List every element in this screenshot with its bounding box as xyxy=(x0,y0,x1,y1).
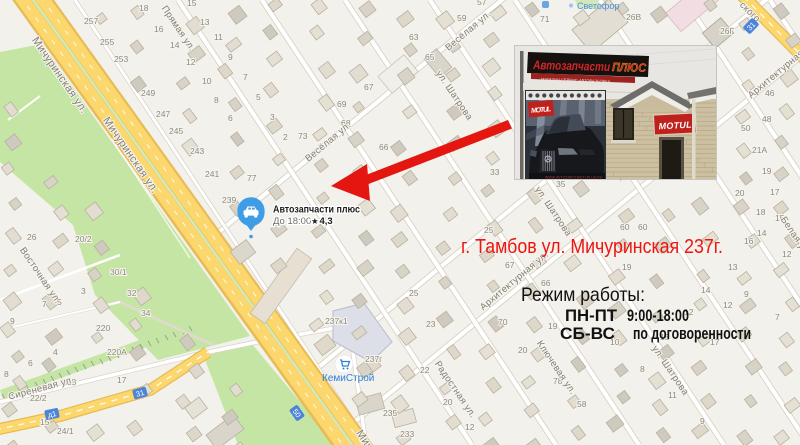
svg-text:77: 77 xyxy=(247,173,257,183)
svg-text:г. Тамбов ул. Мичуринская 237г: г. Тамбов ул. Мичуринская 237г. xyxy=(461,236,723,258)
svg-text:70: 70 xyxy=(498,317,508,327)
svg-text:66: 66 xyxy=(379,142,389,152)
svg-text:26Г: 26Г xyxy=(720,26,734,36)
svg-text:257: 257 xyxy=(84,16,98,26)
svg-text:8: 8 xyxy=(214,95,219,105)
svg-text:241: 241 xyxy=(205,169,219,179)
svg-text:58: 58 xyxy=(577,399,587,409)
svg-text:26В: 26В xyxy=(626,12,641,22)
svg-text:16: 16 xyxy=(154,24,164,34)
svg-text:7: 7 xyxy=(775,312,780,322)
svg-text:73: 73 xyxy=(298,131,308,141)
svg-text:247: 247 xyxy=(156,109,170,119)
svg-text:9:00-18:00: 9:00-18:00 xyxy=(627,307,689,325)
svg-text:СБ-ВС: СБ-ВС xyxy=(560,325,615,343)
svg-text:MOTUL: MOTUL xyxy=(658,120,691,132)
svg-text:249: 249 xyxy=(141,88,155,98)
svg-text:25: 25 xyxy=(484,225,494,235)
svg-text:12: 12 xyxy=(465,422,475,432)
svg-text:25: 25 xyxy=(409,288,419,298)
svg-text:22: 22 xyxy=(420,365,430,375)
svg-text:235: 235 xyxy=(383,408,397,418)
svg-text:19: 19 xyxy=(548,321,558,331)
svg-text:48: 48 xyxy=(762,114,772,124)
svg-text:9: 9 xyxy=(10,316,15,326)
svg-text:10: 10 xyxy=(202,76,212,86)
svg-text:67: 67 xyxy=(364,82,374,92)
svg-text:2: 2 xyxy=(283,132,288,142)
svg-text:26: 26 xyxy=(27,232,37,242)
svg-text:4,3: 4,3 xyxy=(320,216,333,227)
svg-text:57: 57 xyxy=(477,0,487,7)
svg-text:60: 60 xyxy=(638,222,648,232)
svg-text:35: 35 xyxy=(556,179,566,189)
svg-text:15: 15 xyxy=(187,0,197,8)
svg-text:Режим работы:: Режим работы: xyxy=(521,284,645,306)
svg-text:Автозапчасти плюс: Автозапчасти плюс xyxy=(273,204,360,216)
svg-text:12: 12 xyxy=(782,249,792,259)
svg-text:4: 4 xyxy=(53,347,58,357)
svg-text:69: 69 xyxy=(337,99,347,109)
svg-text:59: 59 xyxy=(457,13,467,23)
svg-text:Светофор: Светофор xyxy=(577,1,619,11)
svg-text:220А: 220А xyxy=(107,347,127,357)
svg-text:21А: 21А xyxy=(752,145,767,155)
svg-text:14: 14 xyxy=(170,40,180,50)
svg-text:23: 23 xyxy=(426,319,436,329)
svg-text:60: 60 xyxy=(620,222,630,232)
svg-text:71: 71 xyxy=(540,14,550,24)
svg-text:245: 245 xyxy=(169,126,183,136)
svg-text:19: 19 xyxy=(762,166,772,176)
svg-text:233: 233 xyxy=(400,429,414,439)
svg-text:20/2: 20/2 xyxy=(75,234,92,244)
svg-text:★: ★ xyxy=(311,216,319,226)
svg-text:9: 9 xyxy=(228,52,233,62)
svg-text:7: 7 xyxy=(243,72,248,82)
svg-text:9: 9 xyxy=(700,416,705,426)
svg-text:Автозапчасти: Автозапчасти xyxy=(532,58,610,74)
svg-text:17: 17 xyxy=(770,187,780,197)
svg-text:16: 16 xyxy=(744,236,754,246)
svg-text:КемиСтрой: КемиСтрой xyxy=(322,373,374,384)
svg-text:5: 5 xyxy=(256,92,261,102)
svg-text:До 18:00: До 18:00 xyxy=(273,216,311,227)
svg-text:65: 65 xyxy=(425,52,435,62)
svg-text:253: 253 xyxy=(114,54,128,64)
svg-text:по договоренности: по договоренности xyxy=(633,325,751,343)
svg-text:19: 19 xyxy=(622,262,632,272)
svg-text:8: 8 xyxy=(640,364,645,374)
svg-text:33: 33 xyxy=(490,167,500,177)
svg-text:34: 34 xyxy=(141,308,151,318)
svg-text:255: 255 xyxy=(100,37,114,47)
svg-text:3: 3 xyxy=(81,286,86,296)
svg-text:13: 13 xyxy=(200,17,210,27)
svg-text:11: 11 xyxy=(214,32,223,42)
svg-text:18: 18 xyxy=(139,3,149,13)
svg-text:50: 50 xyxy=(741,123,751,133)
svg-text:63: 63 xyxy=(409,32,419,42)
svg-text:12: 12 xyxy=(723,300,733,310)
svg-text:20: 20 xyxy=(518,345,528,355)
svg-text:20: 20 xyxy=(443,397,453,407)
svg-text:7: 7 xyxy=(42,299,47,309)
svg-text:д1: д1 xyxy=(47,409,57,420)
svg-text:237к1: 237к1 xyxy=(325,316,348,326)
svg-text:20: 20 xyxy=(735,188,745,198)
svg-text:12: 12 xyxy=(186,57,196,67)
svg-text:239: 239 xyxy=(222,195,236,205)
svg-text:17: 17 xyxy=(117,375,127,385)
svg-text:67: 67 xyxy=(505,260,515,270)
svg-text:24/1: 24/1 xyxy=(57,426,74,436)
svg-text:ПН-ПТ: ПН-ПТ xyxy=(565,307,617,325)
svg-text:32: 32 xyxy=(127,288,137,298)
svg-text:ПЛЮС: ПЛЮС xyxy=(612,60,647,75)
svg-text:18: 18 xyxy=(756,207,766,217)
svg-text:WWW.AVTOZAPCHASTI-PLUS.RU: WWW.AVTOZAPCHASTI-PLUS.RU xyxy=(545,175,603,179)
svg-text:220: 220 xyxy=(96,323,110,333)
svg-text:14: 14 xyxy=(701,285,711,295)
svg-text:13: 13 xyxy=(728,262,738,272)
svg-text:3: 3 xyxy=(270,112,275,122)
svg-text:14: 14 xyxy=(757,228,767,238)
svg-text:30/1: 30/1 xyxy=(110,267,127,277)
svg-text:11: 11 xyxy=(668,390,677,400)
svg-text:237г: 237г xyxy=(365,354,382,364)
svg-text:6: 6 xyxy=(228,113,233,123)
svg-text:9: 9 xyxy=(744,289,749,299)
svg-text:6: 6 xyxy=(28,358,33,368)
svg-text:243: 243 xyxy=(190,146,204,156)
svg-text:8: 8 xyxy=(4,369,9,379)
